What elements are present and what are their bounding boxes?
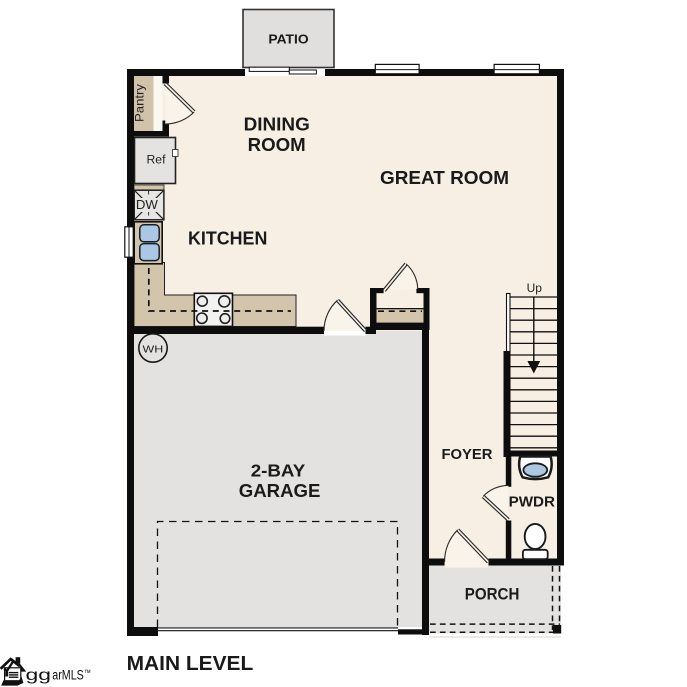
svg-text:Pantry: Pantry <box>135 84 147 122</box>
svg-text:™: ™ <box>84 667 91 677</box>
svg-text:Ref: Ref <box>147 155 167 167</box>
svg-text:DINING: DINING <box>244 114 310 135</box>
svg-text:FOYER: FOYER <box>442 447 494 463</box>
svg-text:WH: WH <box>143 343 164 355</box>
svg-text:PWDR: PWDR <box>509 494 556 510</box>
svg-text:KITCHEN: KITCHEN <box>188 229 267 249</box>
svg-text:MAIN LEVEL: MAIN LEVEL <box>127 652 254 675</box>
svg-text:gg: gg <box>26 667 52 684</box>
svg-text:DW: DW <box>136 198 158 212</box>
svg-text:2-BAY: 2-BAY <box>251 460 306 480</box>
svg-text:ROOM: ROOM <box>248 134 306 155</box>
svg-text:Up: Up <box>527 283 542 295</box>
svg-text:PORCH: PORCH <box>465 585 520 603</box>
svg-text:GARAGE: GARAGE <box>239 480 321 501</box>
svg-text:arMLS: arMLS <box>52 667 84 682</box>
svg-text:PATIO: PATIO <box>268 32 308 47</box>
svg-text:GREAT ROOM: GREAT ROOM <box>380 167 509 188</box>
